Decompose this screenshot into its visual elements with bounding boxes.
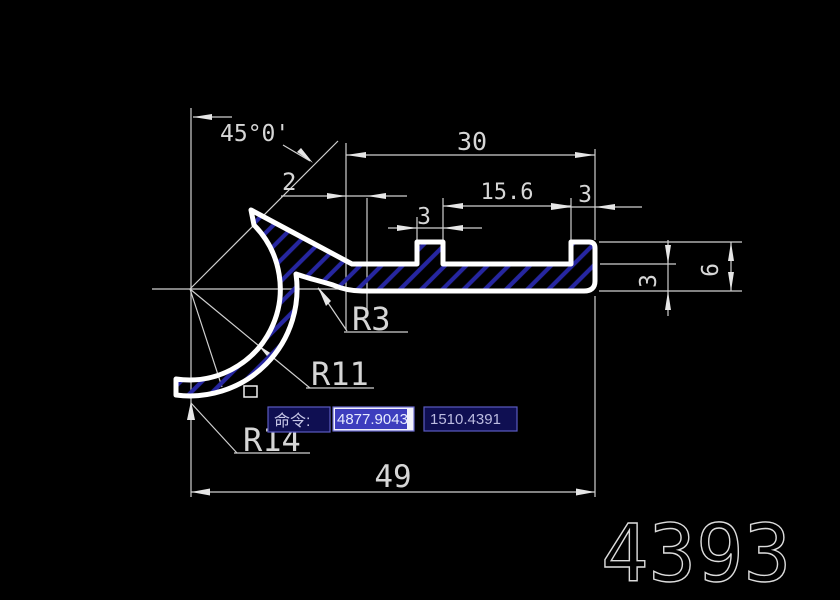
fillet-radius-label: R3 (352, 300, 391, 338)
coord-x-value: 4877.9043 (337, 411, 408, 428)
drawing-viewport: 45°0' 2 30 15.6 3 3 3 6 49 R3 R11 R14 43… (0, 0, 840, 600)
arm-thickness-label: 2 (282, 168, 296, 196)
inner-radius-label: R11 (311, 355, 369, 393)
overall-length-label: 49 (374, 459, 411, 495)
tooth-left-width-label: 3 (417, 204, 431, 230)
top-length-label: 30 (457, 127, 487, 156)
coord-y-value: 1510.4391 (430, 411, 501, 428)
end-height-label: 6 (698, 263, 724, 277)
cad-canvas[interactable]: 45°0' 2 30 15.6 3 3 3 6 49 R3 R11 R14 43… (0, 0, 840, 600)
command-prompt-label: 命令: (274, 412, 310, 430)
angle-dim-label: 45°0' (220, 121, 289, 147)
plate-thickness-label: 3 (636, 274, 662, 288)
part-number: 4393 (601, 508, 791, 600)
groove-span-label: 15.6 (481, 180, 534, 205)
command-bar[interactable]: 命令: 4877.9043 1510.4391 (268, 407, 517, 432)
tooth-right-width-label: 3 (578, 182, 592, 208)
